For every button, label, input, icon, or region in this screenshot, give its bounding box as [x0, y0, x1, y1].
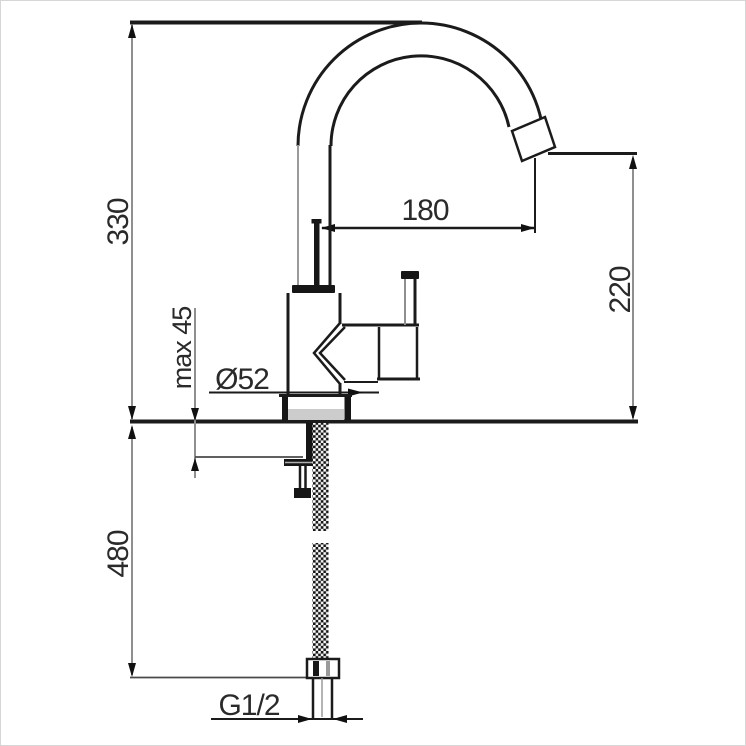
faucet-dimension-drawing: 330 480 max 45 Ø52 180 220: [1, 1, 745, 745]
arrowhead-up: [629, 155, 637, 169]
arrowhead-down: [191, 408, 199, 421]
arrowhead-right: [298, 715, 312, 723]
arrowhead-up: [128, 24, 136, 38]
riser-inner-tube-cap: [312, 219, 322, 224]
body-vee-notch: [314, 323, 340, 384]
dimension-diameter-52: Ø52: [209, 363, 379, 397]
fitting-stripe-dark: [313, 661, 319, 676]
faucet-body: [288, 285, 345, 395]
handle-vee-edge: [320, 327, 345, 380]
hose-end-fitting: [307, 659, 339, 678]
dimension-180: 180: [321, 158, 535, 233]
spout-inner-arc: [331, 56, 509, 146]
riser-inner-tube: [314, 223, 320, 287]
arrowhead-left: [321, 224, 335, 232]
dimension-480: 480: [102, 425, 312, 678]
arrowhead-down: [128, 663, 136, 677]
arrowhead-right: [521, 224, 535, 232]
flange-left-wall: [282, 397, 288, 420]
arrowhead-down: [128, 406, 136, 420]
arrowhead-down: [629, 406, 637, 420]
faucet-handle: [342, 271, 420, 382]
body-top-collar: [292, 285, 335, 293]
dimension-thread-g12: G1/2: [211, 689, 363, 723]
dim-label-220: 220: [604, 266, 637, 313]
fitting-stripe-gray: [326, 661, 330, 676]
dim-label-180: 180: [401, 194, 448, 227]
base-flange: [279, 396, 352, 421]
dim-label-g12: G1/2: [218, 689, 279, 722]
dimension-330: 330: [102, 23, 422, 421]
hose-lower-segment: [313, 543, 329, 659]
dim-label-d52: Ø52: [215, 363, 269, 396]
arrowhead-left: [333, 715, 347, 723]
dim-label-330: 330: [102, 198, 135, 245]
arrowhead-up: [191, 458, 199, 471]
dim-label-480: 480: [102, 530, 135, 577]
flange-right-wall: [345, 397, 352, 420]
hose-upper-segment: [313, 423, 329, 531]
arrowhead-up: [128, 425, 136, 439]
faucet-spout: [298, 23, 555, 287]
mounting-nut: [294, 488, 311, 498]
flange-shadow: [288, 409, 344, 420]
lever-top-cap: [401, 271, 419, 279]
dim-label-max45: max 45: [167, 307, 197, 390]
supply-hose: [307, 423, 339, 720]
spout-outer-arc: [298, 23, 544, 146]
technical-drawing-canvas: 330 480 max 45 Ø52 180 220: [0, 0, 746, 746]
dimension-220: 220: [548, 154, 637, 421]
